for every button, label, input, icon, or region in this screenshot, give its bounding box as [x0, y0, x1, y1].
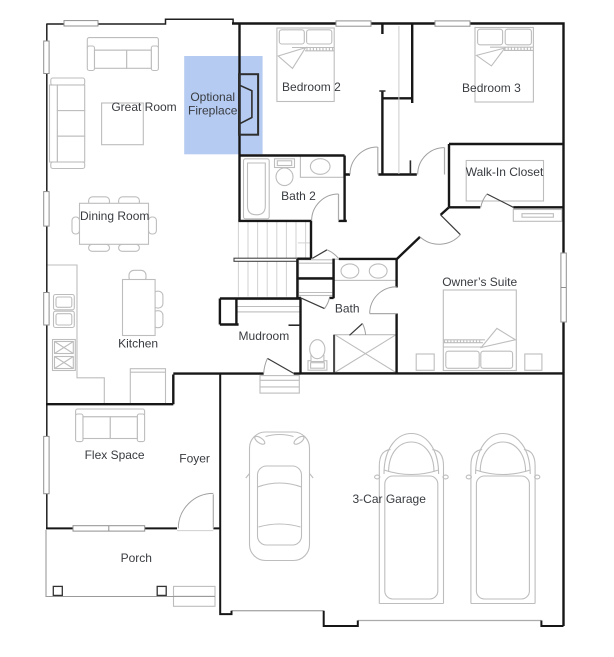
- svg-text:Porch: Porch: [121, 551, 152, 565]
- svg-text:Kitchen: Kitchen: [118, 337, 158, 351]
- svg-text:Optional: Optional: [190, 90, 235, 104]
- svg-text:Fireplace: Fireplace: [188, 104, 238, 118]
- svg-text:Bedroom 3: Bedroom 3: [462, 81, 521, 95]
- svg-text:Dining Room: Dining Room: [80, 209, 149, 223]
- svg-text:Flex Space: Flex Space: [85, 448, 145, 462]
- svg-text:Bath 2: Bath 2: [281, 189, 316, 203]
- svg-text:Foyer: Foyer: [179, 452, 210, 466]
- svg-text:3-Car Garage: 3-Car Garage: [353, 492, 427, 506]
- svg-text:Walk-In Closet: Walk-In Closet: [466, 165, 544, 179]
- svg-text:Bath: Bath: [335, 302, 360, 316]
- svg-text:Bedroom 2: Bedroom 2: [282, 80, 341, 94]
- svg-text:Great Room: Great Room: [111, 100, 176, 114]
- svg-text:Mudroom: Mudroom: [239, 329, 290, 343]
- svg-text:Owner’s Suite: Owner’s Suite: [442, 275, 517, 289]
